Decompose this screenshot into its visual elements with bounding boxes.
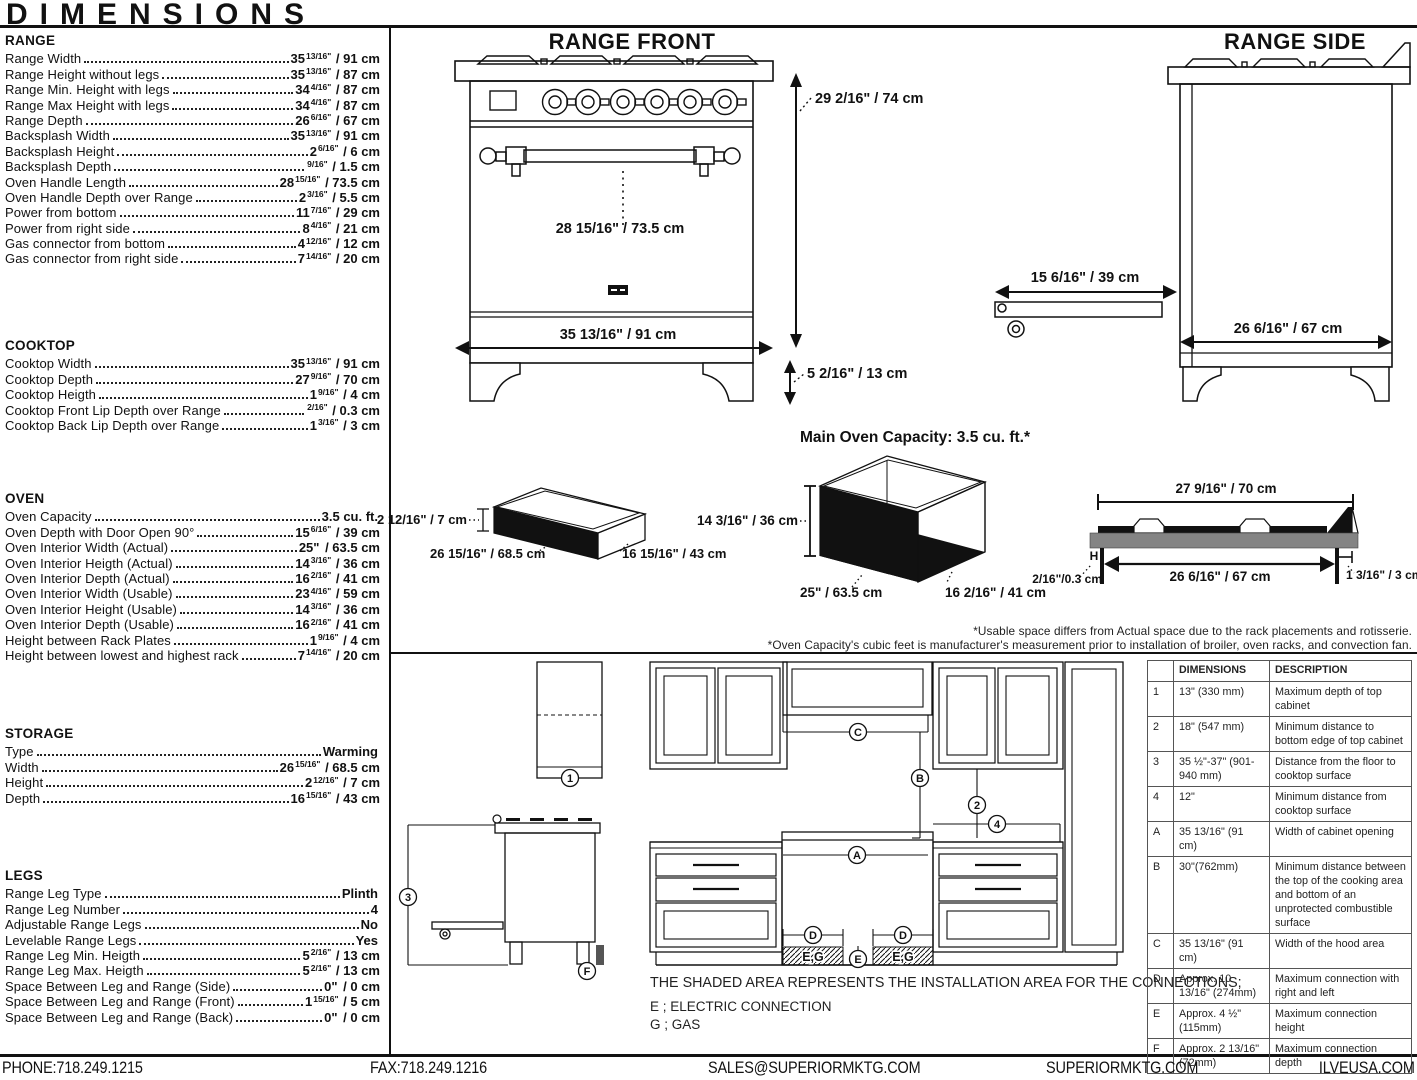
marker-4: 4 bbox=[989, 816, 1006, 833]
spec-row: Backsplash Height 26/16" / 6 cm bbox=[5, 143, 380, 158]
dotted-leader bbox=[181, 261, 295, 263]
display-panel bbox=[490, 91, 516, 110]
spec-label: Height between Rack Plates bbox=[5, 633, 171, 648]
spec-row: Space Between Leg and Range (Front) 115/… bbox=[5, 994, 380, 1009]
spec-row: Oven Interior Width (Actual) 25" / 63.5 … bbox=[5, 540, 380, 555]
table-cell-description: Width of cabinet opening bbox=[1270, 822, 1412, 857]
range-side-title: RANGE SIDE bbox=[1224, 29, 1366, 54]
svg-text:A: A bbox=[853, 850, 861, 862]
table-row: E Approx. 4 ½" (115mm) Maximum connectio… bbox=[1148, 1004, 1412, 1039]
table-header-dimensions: DIMENSIONS bbox=[1174, 661, 1270, 682]
floor-height-measure bbox=[408, 825, 508, 965]
spec-value: 714/16" / 20 cm bbox=[298, 251, 380, 266]
svg-text:E: E bbox=[854, 954, 861, 966]
spec-value: 0" / 0 cm bbox=[324, 979, 380, 994]
footnote-usable-space: *Usable space differs from Actual space … bbox=[973, 624, 1412, 638]
table-row: 2 18" (547 mm) Minimum distance to botto… bbox=[1148, 716, 1412, 751]
spec-label: Adjustable Range Legs bbox=[5, 917, 142, 932]
install-table: DIMENSIONS DESCRIPTION 1 13" (330 mm) Ma… bbox=[1147, 660, 1412, 1074]
spec-row: Range Height without legs 3513/16" / 87 … bbox=[5, 66, 380, 81]
spec-row: Power from right side 84/16" / 21 cm bbox=[5, 220, 380, 235]
dotted-leader bbox=[120, 215, 294, 217]
spec-label: Oven Handle Length bbox=[5, 175, 126, 190]
spec-row: Oven Capacity 3.5 cu. ft. bbox=[5, 509, 380, 524]
table-cell-dimension: 18" (547 mm) bbox=[1174, 716, 1270, 751]
spec-value: 2/16" / 0.3 cm bbox=[306, 403, 380, 418]
range-depth-arrow bbox=[1180, 335, 1392, 349]
spec-label: Backsplash Height bbox=[5, 144, 114, 159]
control-knobs-icon bbox=[543, 90, 747, 115]
dotted-leader bbox=[147, 973, 301, 975]
spec-label: Oven Interior Height (Usable) bbox=[5, 602, 177, 617]
leg-height-arrow bbox=[784, 360, 804, 405]
spec-row: Range Max Height with legs 344/16" / 87 … bbox=[5, 97, 380, 112]
spec-row: Height between lowest and highest rack 7… bbox=[5, 648, 380, 663]
installation-side-diagram: 1 F 3 bbox=[398, 658, 653, 988]
spec-value: 344/16" / 87 cm bbox=[295, 82, 380, 97]
spec-label: Range Max Height with legs bbox=[5, 98, 169, 113]
svg-text:B: B bbox=[916, 773, 924, 785]
spec-row: Oven Handle Length 2815/16" / 73.5 cm bbox=[5, 174, 380, 189]
spec-row: Oven Interior Width (Usable) 234/16" / 5… bbox=[5, 586, 380, 601]
right-base-cabinet bbox=[933, 842, 1063, 952]
dotted-leader bbox=[86, 123, 294, 125]
spec-row: Oven Interior Depth (Usable) 162/16" / 4… bbox=[5, 617, 380, 632]
connection-area-label: E,G bbox=[892, 950, 914, 964]
dotted-leader bbox=[113, 138, 289, 140]
section-title: STORAGE bbox=[5, 725, 380, 742]
dotted-leader bbox=[173, 92, 294, 94]
dotted-leader bbox=[224, 413, 304, 415]
height-measure bbox=[800, 486, 816, 556]
dotted-leader bbox=[168, 246, 296, 248]
dotted-leader bbox=[99, 397, 308, 399]
marker-D-right: D bbox=[873, 927, 933, 947]
spec-label: Cooktop Width bbox=[5, 356, 92, 371]
spec-value: 23/16" / 5.5 cm bbox=[299, 190, 380, 205]
svg-text:F: F bbox=[584, 966, 591, 978]
spec-label: Range Leg Type bbox=[5, 886, 102, 901]
range-front-body bbox=[455, 61, 773, 363]
spec-label: Gas connector from bottom bbox=[5, 236, 165, 251]
range-depth-label: 26 6/16" / 67 cm bbox=[1234, 321, 1342, 337]
spec-value: 9/16" / 1.5 cm bbox=[306, 159, 380, 174]
spec-value: 412/16" / 12 cm bbox=[298, 236, 380, 251]
table-cell-description: Minimum distance from cooktop surface bbox=[1270, 786, 1412, 821]
spec-value: Plinth bbox=[342, 886, 380, 901]
marker-D-left: D bbox=[783, 927, 843, 947]
table-cell-id: 4 bbox=[1148, 786, 1174, 821]
spec-value: 3513/16" / 91 cm bbox=[291, 51, 380, 66]
dotted-leader bbox=[46, 785, 303, 787]
table-header-row: DIMENSIONS DESCRIPTION bbox=[1148, 661, 1412, 682]
dotted-leader bbox=[139, 943, 353, 945]
range-legs-icon bbox=[1183, 367, 1389, 401]
right-upper-cabinet bbox=[933, 662, 1063, 769]
spec-row: Cooktop Width 3513/16" / 91 cm bbox=[5, 356, 380, 371]
drawer-height-label: 2 12/16" / 7 cm bbox=[377, 512, 467, 527]
marker-E: E bbox=[850, 946, 867, 968]
dotted-leader bbox=[95, 366, 289, 368]
top-measure bbox=[1098, 494, 1353, 510]
spec-value: 19/16" / 4 cm bbox=[310, 633, 380, 648]
marker-2: 2 bbox=[969, 797, 986, 814]
dotted-leader bbox=[43, 801, 288, 803]
oven-handle-icon bbox=[480, 147, 740, 176]
spec-value: 3513/16" / 91 cm bbox=[291, 356, 380, 371]
table-row: D Approx. 10 13/16" (274mm) Maximum conn… bbox=[1148, 969, 1412, 1004]
dotted-leader bbox=[171, 550, 297, 552]
footer-website-ilve: ILVEUSA.COM bbox=[1319, 1058, 1415, 1078]
top-cabinet bbox=[537, 662, 602, 778]
table-row: 4 12" Minimum distance from cooktop surf… bbox=[1148, 786, 1412, 821]
section-storage: STORAGE Type Warming Width 2615/16" / 68… bbox=[5, 725, 380, 806]
table-cell-dimension: 35 ½"-37" (901-940 mm) bbox=[1174, 751, 1270, 786]
spec-value: 115/16" / 5 cm bbox=[305, 994, 380, 1009]
svg-text:1: 1 bbox=[567, 773, 573, 785]
dotted-leader bbox=[238, 1004, 303, 1006]
spec-label: Space Between Leg and Range (Side) bbox=[5, 979, 230, 994]
dotted-leader bbox=[162, 77, 288, 79]
table-row: 3 35 ½"-37" (901-940 mm) Distance from t… bbox=[1148, 751, 1412, 786]
spec-label: Range Leg Number bbox=[5, 902, 120, 917]
hood-cabinet bbox=[783, 662, 932, 715]
table-cell-id: 2 bbox=[1148, 716, 1174, 751]
title-rule bbox=[0, 25, 1417, 28]
marker-F: F bbox=[579, 963, 596, 980]
dotted-leader bbox=[123, 912, 369, 914]
spec-value: 0" / 0 cm bbox=[324, 1010, 380, 1025]
table-row: 1 13" (330 mm) Maximum depth of top cabi… bbox=[1148, 681, 1412, 716]
spec-value: 3513/16" / 91 cm bbox=[291, 128, 380, 143]
spec-value: 84/16" / 21 cm bbox=[302, 221, 380, 236]
marker-3: 3 bbox=[400, 889, 417, 906]
spec-row: Range Depth 266/16" / 67 cm bbox=[5, 113, 380, 128]
spec-label: Cooktop Heigth bbox=[5, 387, 96, 402]
tall-cabinet bbox=[1065, 662, 1123, 952]
range-side-diagram: RANGE SIDE 15 6/16" / 39 cm 26 6/16" / 6… bbox=[985, 30, 1417, 420]
spec-value: 117/16" / 29 cm bbox=[296, 205, 380, 220]
marker-A: A bbox=[783, 847, 928, 864]
oven-capacity-title: Main Oven Capacity: 3.5 cu. ft.* bbox=[800, 429, 1031, 446]
dotted-leader bbox=[105, 896, 340, 898]
spec-row: Width 2615/16" / 68.5 cm bbox=[5, 759, 380, 774]
spec-row: Adjustable Range Legs No bbox=[5, 917, 380, 932]
dotted-leader bbox=[117, 154, 307, 156]
spec-label: Backsplash Width bbox=[5, 128, 110, 143]
spec-value: Warming bbox=[323, 744, 380, 759]
spec-label: Cooktop Back Lip Depth over Range bbox=[5, 418, 219, 433]
spec-label: Range Min. Height with legs bbox=[5, 82, 170, 97]
spec-value: 279/16" / 70 cm bbox=[295, 372, 380, 387]
spec-label: Cooktop Depth bbox=[5, 372, 93, 387]
spec-value: 52/16" / 13 cm bbox=[302, 948, 380, 963]
spec-row: Oven Interior Height (Usable) 143/16" / … bbox=[5, 601, 380, 616]
dotted-leader bbox=[174, 643, 308, 645]
table-cell-description: Distance from the floor to cooktop surfa… bbox=[1270, 751, 1412, 786]
spec-row: Backsplash Width 3513/16" / 91 cm bbox=[5, 128, 380, 143]
table-cell-dimension: Approx. 10 13/16" (274mm) bbox=[1174, 969, 1270, 1004]
section-title: RANGE bbox=[5, 32, 380, 49]
dotted-leader bbox=[129, 185, 278, 187]
spec-value: 143/16" / 36 cm bbox=[295, 602, 380, 617]
connection-area-right: E,G bbox=[873, 947, 933, 965]
dotted-leader bbox=[114, 169, 304, 171]
connection-area-label: E,G bbox=[802, 950, 824, 964]
dotted-leader bbox=[242, 658, 296, 660]
table-cell-id: C bbox=[1148, 934, 1174, 969]
dotted-leader bbox=[133, 231, 301, 233]
svg-text:D: D bbox=[899, 930, 907, 942]
spec-row: Type Warming bbox=[5, 744, 380, 759]
marker-C: C bbox=[850, 724, 867, 741]
spec-list: Cooktop Width 3513/16" / 91 cm Cooktop D… bbox=[5, 356, 380, 433]
table-cell-dimension: 13" (330 mm) bbox=[1174, 681, 1270, 716]
spec-value: 19/16" / 4 cm bbox=[310, 387, 380, 402]
height-arrow bbox=[790, 73, 811, 348]
dotted-leader bbox=[96, 382, 293, 384]
spec-row: Oven Interior Heigth (Actual) 143/16" / … bbox=[5, 555, 380, 570]
burner-silhouettes-icon bbox=[1098, 507, 1358, 533]
spec-label: Oven Handle Depth over Range bbox=[5, 190, 193, 205]
section-title: COOKTOP bbox=[5, 337, 380, 354]
dotted-leader bbox=[197, 535, 293, 537]
spec-value: 234/16" / 59 cm bbox=[295, 586, 380, 601]
table-cell-description: Minimum distance to bottom edge of top c… bbox=[1270, 716, 1412, 751]
dotted-leader bbox=[95, 519, 320, 521]
spec-label: Width bbox=[5, 760, 39, 775]
spec-label: Cooktop Front Lip Depth over Range bbox=[5, 403, 221, 418]
footer-fax: FAX:718.249.1216 bbox=[370, 1058, 487, 1078]
table-cell-description: Maximum depth of top cabinet bbox=[1270, 681, 1412, 716]
spec-list: Oven Capacity 3.5 cu. ft. Oven Depth wit… bbox=[5, 509, 380, 663]
spec-label: Range Width bbox=[5, 51, 81, 66]
installation-main-diagram: C B 2 4 bbox=[645, 658, 1135, 978]
spec-row: Range Leg Min. Heigth 52/16" / 13 cm bbox=[5, 948, 380, 963]
table-cell-dimension: 12" bbox=[1174, 786, 1270, 821]
spec-row: Height between Rack Plates 19/16" / 4 cm bbox=[5, 632, 380, 647]
burner-grates-icon bbox=[1185, 59, 1373, 67]
left-upper-cabinet bbox=[650, 662, 787, 769]
spec-row: Cooktop Back Lip Depth over Range 13/16"… bbox=[5, 418, 380, 433]
table-cell-description: Maximum connection height bbox=[1270, 1004, 1412, 1039]
handle-length-label: 28 15/16" / 73.5 cm bbox=[556, 221, 685, 237]
dotted-leader bbox=[180, 612, 293, 614]
spec-label: Height bbox=[5, 775, 43, 790]
table-row: A 35 13/16" (91 cm) Width of cabinet ope… bbox=[1148, 822, 1412, 857]
spec-value: 344/16" / 87 cm bbox=[295, 98, 380, 113]
section-oven: OVEN Oven Capacity 3.5 cu. ft. Oven Dept… bbox=[5, 490, 380, 663]
footer-phone: PHONE:718.249.1215 bbox=[2, 1058, 143, 1078]
front-lip-label: 2/16"/0.3 cm bbox=[1032, 572, 1102, 586]
horizontal-divider bbox=[389, 652, 1417, 654]
inner-width-label: 26 6/16" / 67 cm bbox=[1170, 569, 1271, 584]
left-base-cabinet bbox=[650, 842, 782, 952]
spec-value: 2615/16" / 68.5 cm bbox=[280, 760, 380, 775]
spec-label: Height between lowest and highest rack bbox=[5, 648, 239, 663]
table-cell-id: B bbox=[1148, 857, 1174, 934]
cooktop-body-band bbox=[1090, 533, 1358, 548]
table-cell-id: D bbox=[1148, 969, 1174, 1004]
leg-height-label: 5 2/16" / 13 cm bbox=[807, 366, 907, 382]
marker-1: 1 bbox=[562, 770, 579, 787]
storage-drawer-diagram: 2 12/16" / 7 cm 26 15/16" / 68.5 cm 16 1… bbox=[350, 445, 733, 575]
spec-row: Range Leg Max. Heigth 52/16" / 13 cm bbox=[5, 963, 380, 978]
spec-label: Range Leg Min. Heigth bbox=[5, 948, 140, 963]
spec-row: Depth 1615/16" / 43 cm bbox=[5, 790, 380, 805]
spec-value: 2815/16" / 73.5 cm bbox=[280, 175, 380, 190]
cooktop-top-width-label: 27 9/16" / 70 cm bbox=[1176, 481, 1277, 496]
marker-B: B bbox=[912, 770, 929, 787]
table-cell-description: Minimum distance between the top of the … bbox=[1270, 857, 1412, 934]
svg-text:4: 4 bbox=[994, 819, 1001, 831]
dimensions-sheet: DIMENSIONS RANGE Range Width 3513/16" / … bbox=[0, 0, 1417, 1080]
spec-label: Oven Interior Depth (Actual) bbox=[5, 571, 170, 586]
spec-label: Range Height without legs bbox=[5, 67, 159, 82]
table-cell-dimension: 35 13/16" (91 cm) bbox=[1174, 934, 1270, 969]
dotted-leader bbox=[84, 61, 288, 63]
back-lip-label: 1 3/16" / 3 cm bbox=[1346, 568, 1417, 582]
table-cell-dimension: Approx. 4 ½" (115mm) bbox=[1174, 1004, 1270, 1039]
spec-label: Oven Interior Width (Usable) bbox=[5, 586, 173, 601]
spec-row: Range Width 3513/16" / 91 cm bbox=[5, 51, 380, 66]
depth-leader bbox=[946, 572, 952, 584]
range-side-view bbox=[432, 815, 604, 965]
connection-block bbox=[596, 945, 604, 965]
spec-row: Cooktop Heigth 19/16" / 4 cm bbox=[5, 387, 380, 402]
table-cell-id: E bbox=[1148, 1004, 1174, 1039]
spec-value: 3513/16" / 87 cm bbox=[291, 67, 380, 82]
spec-label: Levelable Range Legs bbox=[5, 933, 136, 948]
spec-label: Oven Interior Width (Actual) bbox=[5, 540, 168, 555]
svg-text:D: D bbox=[809, 930, 817, 942]
spec-label: Type bbox=[5, 744, 34, 759]
dotted-leader bbox=[145, 927, 359, 929]
spec-value: 13/16" / 3 cm bbox=[310, 418, 380, 433]
range-front-title: RANGE FRONT bbox=[549, 29, 716, 54]
svg-text:3: 3 bbox=[405, 892, 411, 904]
spec-label: Gas connector from right side bbox=[5, 251, 178, 266]
svg-text:2: 2 bbox=[974, 800, 980, 812]
spec-row: Cooktop Front Lip Depth over Range 2/16"… bbox=[5, 402, 380, 417]
table-header-description: DESCRIPTION bbox=[1270, 661, 1412, 682]
spec-row: Range Min. Height with legs 344/16" / 87… bbox=[5, 82, 380, 97]
range-front-diagram: RANGE FRONT bbox=[430, 30, 950, 420]
spec-value: Yes bbox=[356, 933, 380, 948]
section-title: OVEN bbox=[5, 490, 380, 507]
spec-label: Space Between Leg and Range (Front) bbox=[5, 994, 235, 1009]
dotted-leader bbox=[177, 627, 293, 629]
table-cell-dimension: 35 13/16" (91 cm) bbox=[1174, 822, 1270, 857]
spec-label: Oven Capacity bbox=[5, 509, 92, 524]
range-width-label: 35 13/16" / 91 cm bbox=[560, 327, 677, 343]
backsplash-icon bbox=[1383, 43, 1410, 67]
spec-label: Oven Interior Depth (Usable) bbox=[5, 617, 174, 632]
spec-row: Space Between Leg and Range (Back) 0" / … bbox=[5, 1009, 380, 1024]
footer-email: SALES@SUPERIORMKTG.COM bbox=[708, 1058, 920, 1078]
table-header-id bbox=[1148, 661, 1174, 682]
spec-label: Space Between Leg and Range (Back) bbox=[5, 1010, 233, 1025]
spec-row: Gas connector from right side 714/16" / … bbox=[5, 251, 380, 266]
section-range: RANGE Range Width 3513/16" / 91 cm Range… bbox=[5, 32, 380, 266]
dotted-leader bbox=[176, 596, 294, 598]
connection-area-left: E,G bbox=[783, 947, 843, 965]
spec-list: Range Leg Type Plinth Range Leg Number 4… bbox=[5, 886, 380, 1025]
spec-label: Oven Interior Heigth (Actual) bbox=[5, 556, 173, 571]
spec-value: 714/16" / 20 cm bbox=[298, 648, 380, 663]
h-marker-label: H bbox=[1090, 549, 1099, 563]
spec-row: Cooktop Depth 279/16" / 70 cm bbox=[5, 371, 380, 386]
spec-row: Power from bottom 117/16" / 29 cm bbox=[5, 205, 380, 220]
burner-grates-icon bbox=[478, 56, 757, 64]
door-depth-label: 15 6/16" / 39 cm bbox=[1031, 270, 1139, 286]
dotted-leader bbox=[172, 108, 293, 110]
spec-label: Depth bbox=[5, 791, 40, 806]
dotted-leader bbox=[173, 581, 294, 583]
spec-value: 266/16" / 67 cm bbox=[295, 113, 380, 128]
spec-row: Oven Handle Depth over Range 23/16" / 5.… bbox=[5, 190, 380, 205]
spec-label: Oven Depth with Door Open 90° bbox=[5, 525, 194, 540]
dotted-leader bbox=[236, 1020, 322, 1022]
section-cooktop: COOKTOP Cooktop Width 3513/16" / 91 cm C… bbox=[5, 337, 380, 433]
dotted-leader bbox=[42, 770, 278, 772]
spec-row: Space Between Leg and Range (Side) 0" / … bbox=[5, 978, 380, 993]
height-measure bbox=[469, 509, 489, 531]
spec-value: 4 bbox=[371, 902, 380, 917]
dotted-leader bbox=[196, 200, 297, 202]
oven-width-label: 25" / 63.5 cm bbox=[800, 585, 882, 600]
dotted-leader bbox=[222, 428, 307, 430]
footnote-oven-capacity: *Oven Capacity's cubic feet is manufactu… bbox=[768, 638, 1412, 652]
spec-value: 52/16" / 13 cm bbox=[302, 963, 380, 978]
dotted-leader bbox=[176, 566, 294, 568]
oven-front-face bbox=[820, 486, 918, 582]
spec-row: Range Leg Type Plinth bbox=[5, 886, 380, 901]
spec-row: Range Leg Number 4 bbox=[5, 901, 380, 916]
spec-label: Range Leg Max. Heigth bbox=[5, 963, 144, 978]
spec-row: Oven Interior Depth (Actual) 162/16" / 4… bbox=[5, 571, 380, 586]
spec-list: Range Width 3513/16" / 91 cm Range Heigh… bbox=[5, 51, 380, 266]
spec-row: Levelable Range Legs Yes bbox=[5, 932, 380, 947]
table-cell-id: A bbox=[1148, 822, 1174, 857]
drawer-width-label: 26 15/16" / 68.5 cm bbox=[430, 546, 545, 561]
spec-label: Power from bottom bbox=[5, 205, 117, 220]
cooktop-profile-diagram: 27 9/16" / 70 cm 26 6/16" / 67 cm H 2/16… bbox=[1030, 480, 1417, 605]
spec-value: 162/16" / 41 cm bbox=[295, 617, 380, 632]
door-depth-arrow bbox=[995, 285, 1177, 299]
spec-label: Backsplash Depth bbox=[5, 159, 111, 174]
table-body: 1 13" (330 mm) Maximum depth of top cabi… bbox=[1148, 681, 1412, 1074]
table-cell-description: Maximum connection with right and left bbox=[1270, 969, 1412, 1004]
legend-gas: G ; GAS bbox=[650, 1017, 700, 1032]
spec-label: Power from right side bbox=[5, 221, 130, 236]
dotted-leader bbox=[37, 754, 321, 756]
spec-value: 1615/16" / 43 cm bbox=[291, 791, 380, 806]
section-legs: LEGS Range Leg Type Plinth Range Leg Num… bbox=[5, 867, 380, 1025]
table-cell-id: 3 bbox=[1148, 751, 1174, 786]
dotted-leader bbox=[143, 958, 300, 960]
table-cell-id: 1 bbox=[1148, 681, 1174, 716]
spec-row: Oven Depth with Door Open 90° 156/16" / … bbox=[5, 524, 380, 539]
open-door-icon bbox=[995, 302, 1162, 337]
section-title: LEGS bbox=[5, 867, 380, 884]
width-arrow bbox=[455, 341, 773, 355]
table-cell-dimension: 30"(762mm) bbox=[1174, 857, 1270, 934]
table-row: B 30"(762mm) Minimum distance between th… bbox=[1148, 857, 1412, 934]
table-row: C 35 13/16" (91 cm) Width of the hood ar… bbox=[1148, 934, 1412, 969]
dotted-leader bbox=[233, 989, 322, 991]
range-height-label: 29 2/16" / 74 cm bbox=[815, 91, 923, 107]
